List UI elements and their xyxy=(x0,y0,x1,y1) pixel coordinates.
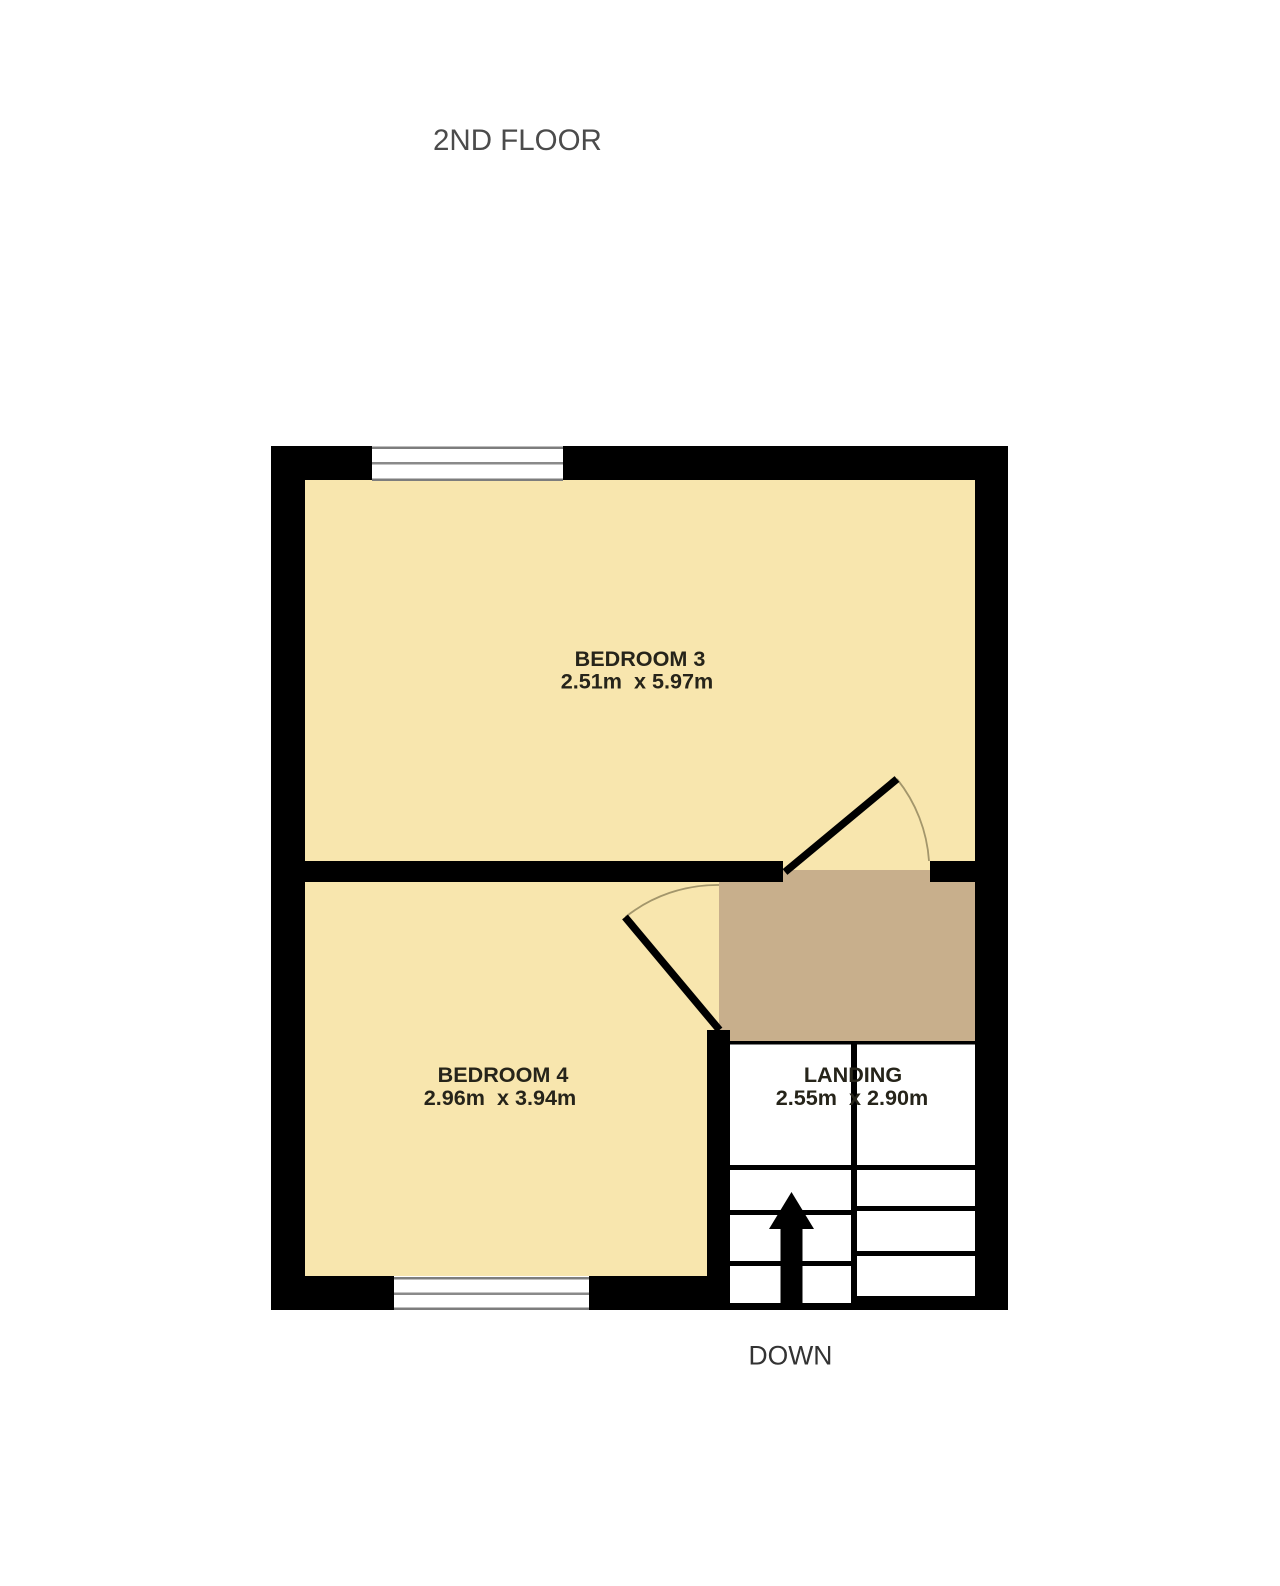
svg-text:LANDING: LANDING xyxy=(804,1062,902,1087)
svg-text:DOWN: DOWN xyxy=(749,1341,833,1371)
svg-text:2.55m x 2.90m: 2.55m x 2.90m xyxy=(776,1085,928,1110)
svg-text:2.96m x 3.94m: 2.96m x 3.94m xyxy=(424,1085,576,1110)
svg-text:BEDROOM 4: BEDROOM 4 xyxy=(438,1062,569,1087)
svg-text:2.51m x 5.97m: 2.51m x 5.97m xyxy=(561,669,713,694)
svg-text:BEDROOM 3: BEDROOM 3 xyxy=(575,646,706,671)
svg-text:2ND FLOOR: 2ND FLOOR xyxy=(433,124,602,157)
